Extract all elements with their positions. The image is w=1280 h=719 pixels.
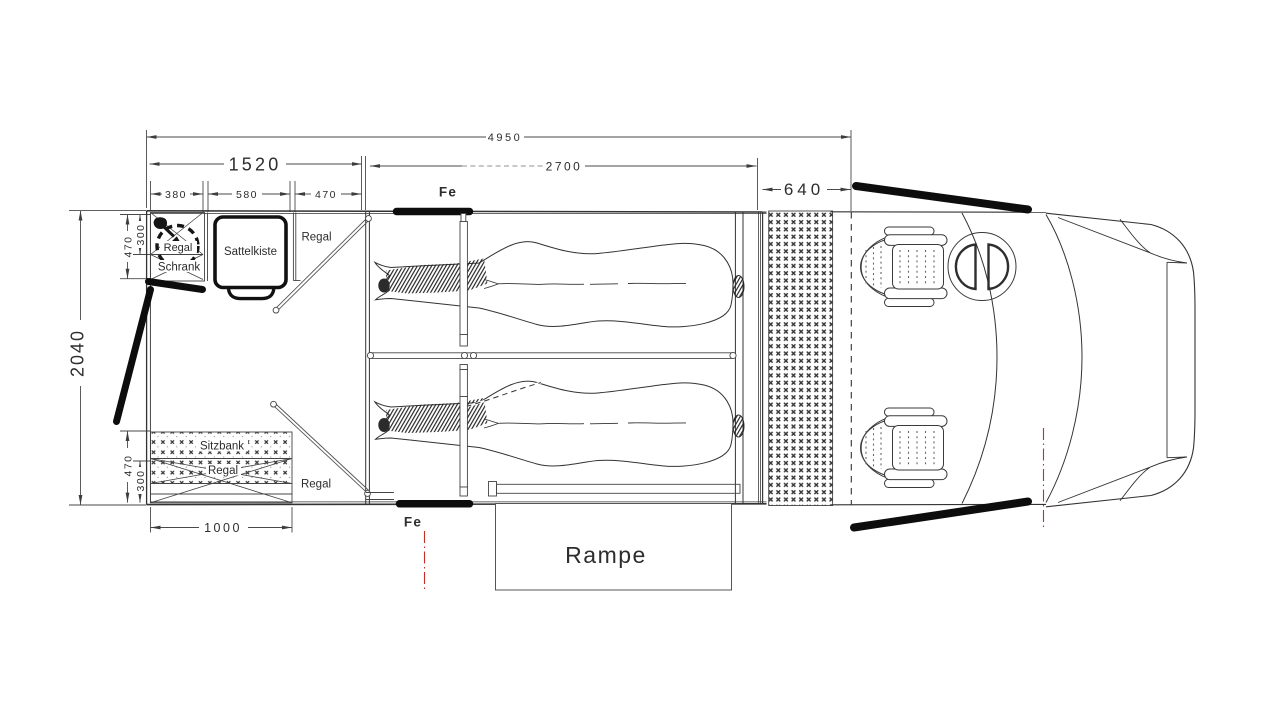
svg-text:300: 300 (135, 223, 147, 245)
svg-text:Rampe: Rampe (565, 542, 647, 568)
svg-text:580: 580 (236, 189, 258, 201)
svg-text:300: 300 (135, 469, 147, 491)
svg-text:Sitzbank: Sitzbank (200, 441, 244, 453)
svg-text:4950: 4950 (488, 132, 522, 144)
svg-text:2700: 2700 (546, 160, 583, 174)
svg-text:Fe: Fe (439, 185, 457, 200)
svg-text:Regal: Regal (301, 232, 331, 244)
svg-text:470: 470 (123, 454, 135, 476)
svg-text:Regal: Regal (208, 465, 238, 477)
svg-text:640: 640 (784, 180, 824, 199)
svg-text:Fe: Fe (404, 515, 422, 530)
svg-text:Schrank: Schrank (158, 262, 200, 274)
svg-text:Regal: Regal (164, 242, 193, 254)
svg-text:1000: 1000 (204, 521, 242, 535)
svg-text:Sattelkiste: Sattelkiste (224, 246, 277, 258)
svg-text:Regal: Regal (301, 479, 331, 491)
svg-text:470: 470 (315, 189, 337, 201)
svg-text:470: 470 (123, 235, 135, 257)
svg-text:380: 380 (165, 189, 187, 201)
svg-text:2040: 2040 (68, 329, 88, 377)
svg-text:1520: 1520 (229, 155, 282, 175)
